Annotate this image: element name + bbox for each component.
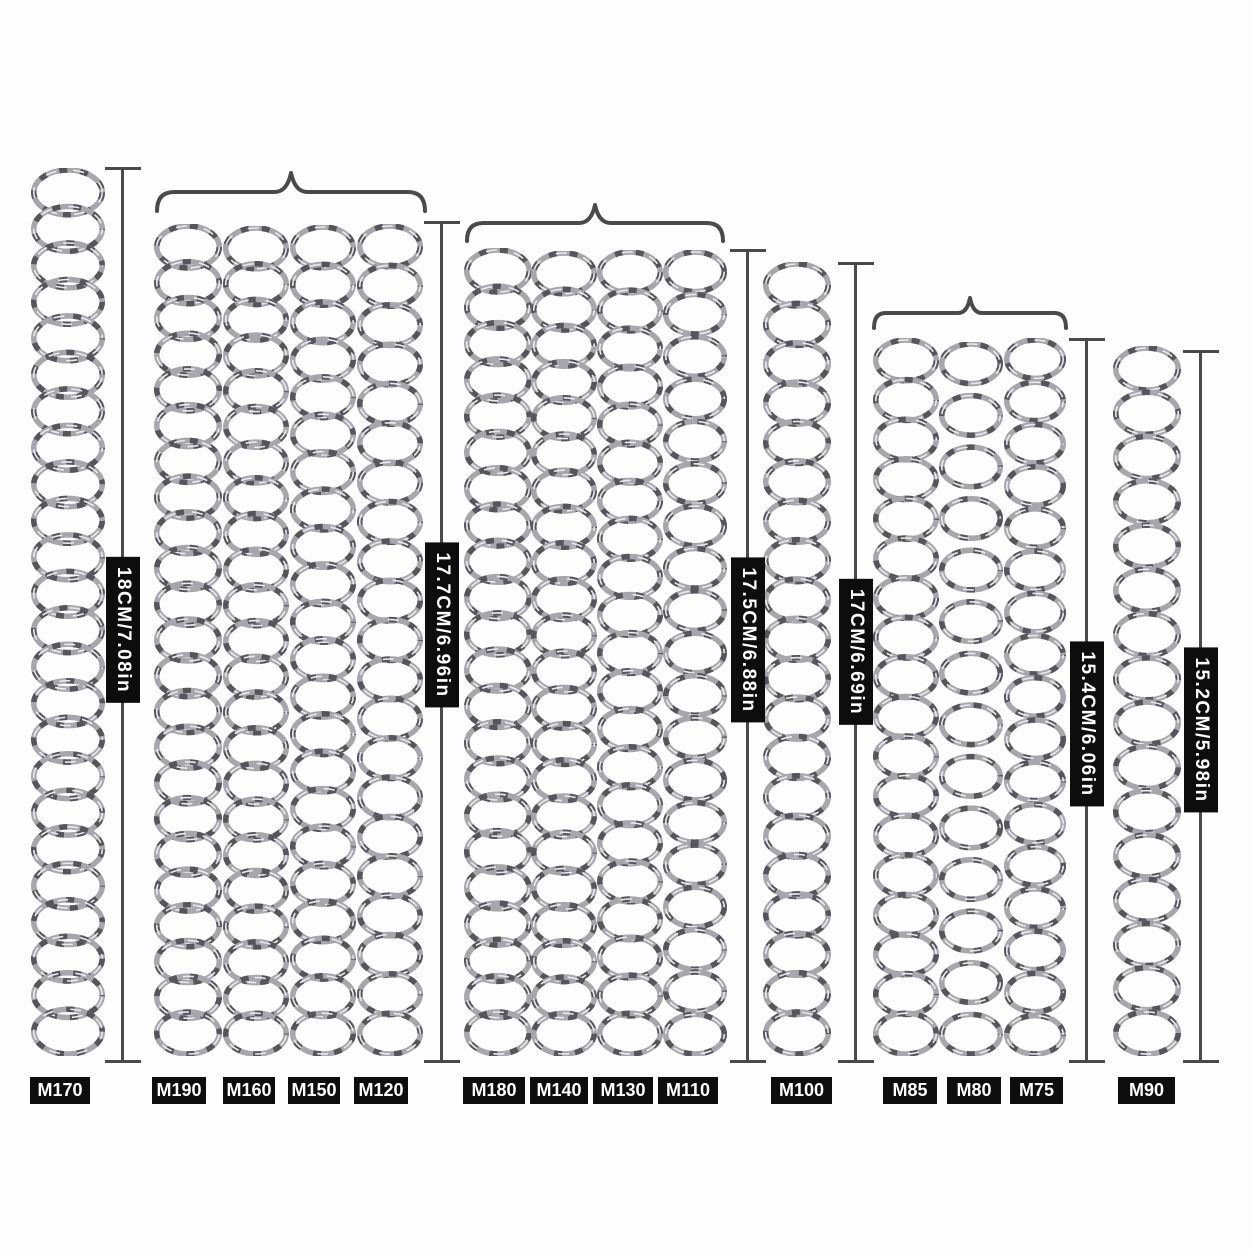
measurement-label-15-2cm: 15.2CM/5.98in [1184,647,1218,812]
spring-m170 [30,168,106,1056]
group-brace-m190-m120 [155,171,427,213]
model-label-m140: M140 [530,1077,588,1104]
model-label-m130: M130 [593,1077,653,1104]
spring-m120 [356,224,424,1056]
spring-m150 [289,225,357,1056]
spring-m110 [662,250,728,1056]
model-label-m90: M90 [1118,1077,1175,1104]
model-label-m150: M150 [288,1077,340,1104]
spring-m190 [153,224,223,1056]
group-brace-m180-m110 [465,203,725,243]
measurement-label-17-7cm: 17.7CM/6.96in [425,542,459,707]
spring-size-chart: 18CM/7.08in 17.7CM/6.96in 17.5CM/6.88in … [0,0,1250,1250]
spring-m75 [1003,338,1067,1056]
group-brace-m85-m75 [872,296,1068,330]
model-label-m75: M75 [1010,1077,1063,1104]
model-label-m180: M180 [463,1077,525,1104]
model-label-m120: M120 [354,1077,408,1104]
spring-m180 [463,248,533,1056]
model-label-m160: M160 [223,1077,275,1104]
spring-m85 [872,338,940,1056]
spring-m140 [530,251,598,1056]
spring-m80 [938,342,1004,1056]
model-label-m85: M85 [883,1077,937,1104]
spring-m100 [762,262,832,1056]
spring-m130 [596,250,664,1056]
measurement-label-17cm: 17CM/6.69in [839,579,873,725]
model-label-m110: M110 [658,1077,718,1104]
model-label-m80: M80 [947,1077,1001,1104]
measurement-label-15-4cm: 15.4CM/6.06in [1070,641,1104,806]
model-label-m100: M100 [771,1077,832,1104]
measurement-label-18cm: 18CM/7.08in [106,557,140,703]
model-label-m190: M190 [152,1077,206,1104]
spring-m160 [222,226,290,1056]
measurement-label-17-5cm: 17.5CM/6.88in [731,557,765,722]
model-label-m170: M170 [30,1077,90,1104]
spring-m90 [1112,346,1182,1056]
